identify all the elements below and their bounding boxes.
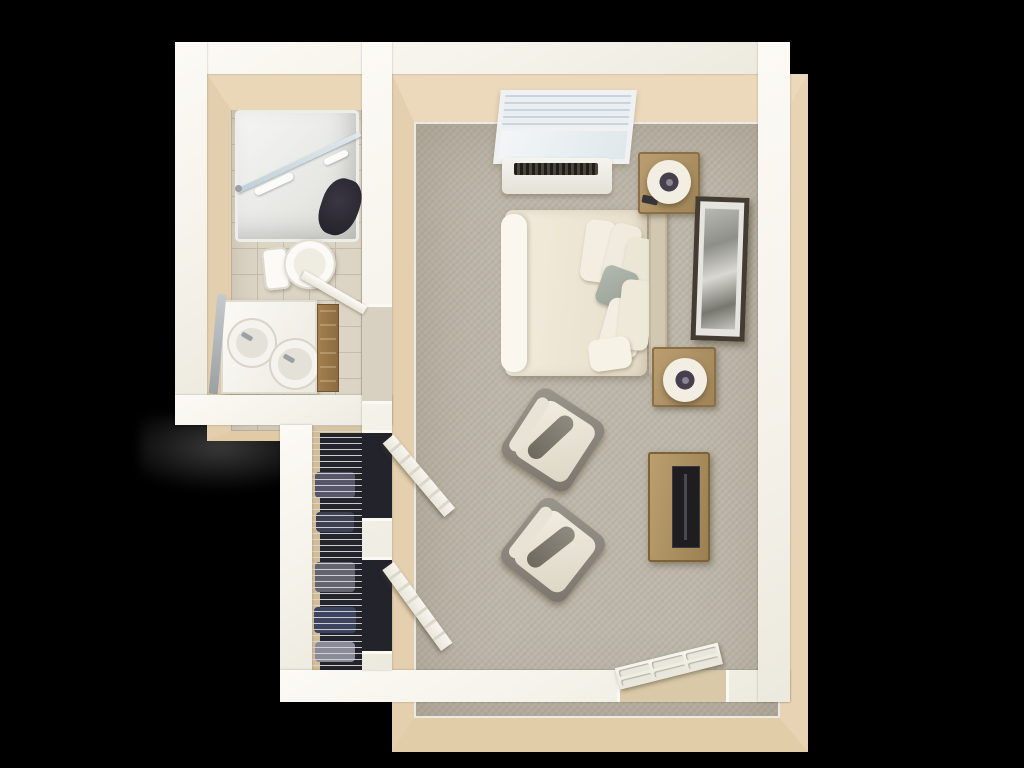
table-lamp-north — [647, 160, 691, 204]
shower-door-handle — [235, 185, 242, 192]
closet-wire-shelving — [312, 425, 362, 670]
window — [493, 90, 637, 164]
window-blinds — [502, 95, 631, 127]
apartment-floor-plan — [175, 42, 790, 702]
pillow — [587, 335, 633, 373]
framed-wall-art — [691, 196, 750, 342]
window-lower-pane — [499, 131, 628, 159]
floor-plan-canvas — [0, 0, 1024, 768]
bathroom-cabinet — [317, 304, 339, 392]
table-lamp-south — [663, 358, 707, 402]
wall-north — [175, 42, 790, 74]
sink-right — [269, 338, 321, 390]
tv — [672, 466, 700, 548]
ac-vent-grille — [514, 163, 598, 175]
bathroom-doorway — [362, 304, 392, 404]
bed-sheet-fold — [501, 214, 527, 372]
wall-west — [175, 42, 207, 425]
wall-closet-west — [280, 425, 312, 702]
ptac-ac-unit — [502, 158, 612, 194]
wall-bathroom-south — [175, 395, 392, 425]
wall-east — [758, 42, 790, 702]
